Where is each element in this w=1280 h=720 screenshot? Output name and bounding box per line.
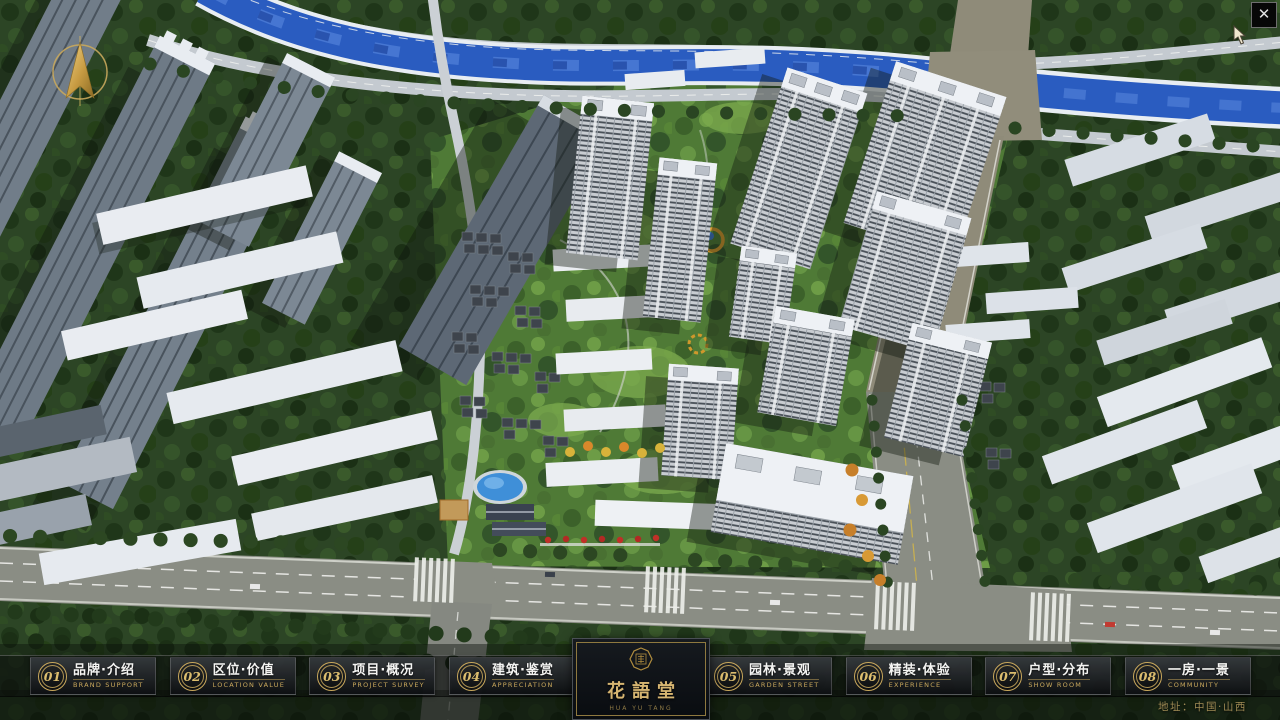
logo-panel[interactable]: 花語堂 HUA YU TANG — [572, 638, 710, 720]
mouse-cursor-icon — [1233, 25, 1249, 45]
menu-subtitle: COMMUNITY — [1168, 679, 1230, 689]
menu-subtitle: GARDEN STREET — [749, 679, 819, 689]
menu-item-architecture[interactable]: 04 建筑·鉴赏APPRECIATION — [449, 657, 575, 695]
menu-title: 精装·体验 — [889, 664, 951, 677]
seal-icon — [629, 647, 653, 675]
menu-group-right: 05 园林·景观GARDEN STREET 06 精装·体验EXPERIENCE… — [706, 657, 1251, 695]
menu-number: 02 — [183, 669, 200, 684]
menu-title: 项目·概况 — [352, 664, 425, 677]
menu-number: 07 — [999, 669, 1016, 684]
menu-number: 08 — [1139, 669, 1156, 684]
close-button[interactable]: ✕ — [1251, 2, 1277, 28]
menu-number: 03 — [323, 669, 340, 684]
menu-number-badge: 05 — [714, 662, 743, 691]
menu-subtitle: APPRECIATION — [492, 679, 554, 689]
menu-subtitle: PROJECT SURVEY — [352, 679, 425, 689]
menu-number-badge: 01 — [38, 662, 67, 691]
menu-subtitle: SHOW ROOM — [1028, 679, 1090, 689]
menu-number-badge: 04 — [457, 662, 486, 691]
sales-center — [440, 500, 468, 520]
bottom-menu-bar: 01 品牌·介绍BRAND SUPPORT 02 区位·价值LOCATION V… — [0, 655, 1280, 697]
project-address: 地址：中国·山西 — [1158, 699, 1247, 714]
menu-item-floorplan[interactable]: 07 户型·分布SHOW ROOM — [985, 657, 1111, 695]
menu-title: 品牌·介绍 — [73, 664, 144, 677]
menu-item-interior[interactable]: 06 精装·体验EXPERIENCE — [846, 657, 972, 695]
brand-name: 花語堂 — [607, 677, 682, 703]
menu-item-garden[interactable]: 05 园林·景观GARDEN STREET — [706, 657, 832, 695]
menu-group-left: 01 品牌·介绍BRAND SUPPORT 02 区位·价值LOCATION V… — [30, 657, 575, 695]
menu-item-location[interactable]: 02 区位·价值LOCATION VALUE — [170, 657, 296, 695]
menu-item-view[interactable]: 08 一房·一景COMMUNITY — [1125, 657, 1251, 695]
menu-title: 建筑·鉴赏 — [492, 664, 554, 677]
menu-number-badge: 02 — [178, 662, 207, 691]
menu-subtitle: EXPERIENCE — [889, 679, 951, 689]
menu-number-badge: 07 — [993, 662, 1022, 691]
menu-item-brand[interactable]: 01 品牌·介绍BRAND SUPPORT — [30, 657, 156, 695]
menu-number: 06 — [859, 669, 876, 684]
menu-number-badge: 08 — [1133, 662, 1162, 691]
menu-subtitle: BRAND SUPPORT — [73, 679, 144, 689]
app-window: 01 品牌·介绍BRAND SUPPORT 02 区位·价值LOCATION V… — [0, 0, 1280, 720]
brand-tagline: HUA YU TANG — [609, 705, 672, 712]
menu-title: 区位·价值 — [213, 664, 285, 677]
menu-item-project[interactable]: 03 项目·概况PROJECT SURVEY — [309, 657, 435, 695]
menu-number-badge: 06 — [854, 662, 883, 691]
menu-number-badge: 03 — [317, 662, 346, 691]
menu-title: 户型·分布 — [1028, 664, 1090, 677]
menu-subtitle: LOCATION VALUE — [213, 679, 285, 689]
menu-number: 04 — [463, 669, 480, 684]
menu-title: 园林·景观 — [749, 664, 819, 677]
site-plan-render — [0, 0, 1280, 720]
menu-number: 01 — [44, 669, 61, 684]
menu-title: 一房·一景 — [1168, 664, 1230, 677]
menu-number: 05 — [720, 669, 737, 684]
